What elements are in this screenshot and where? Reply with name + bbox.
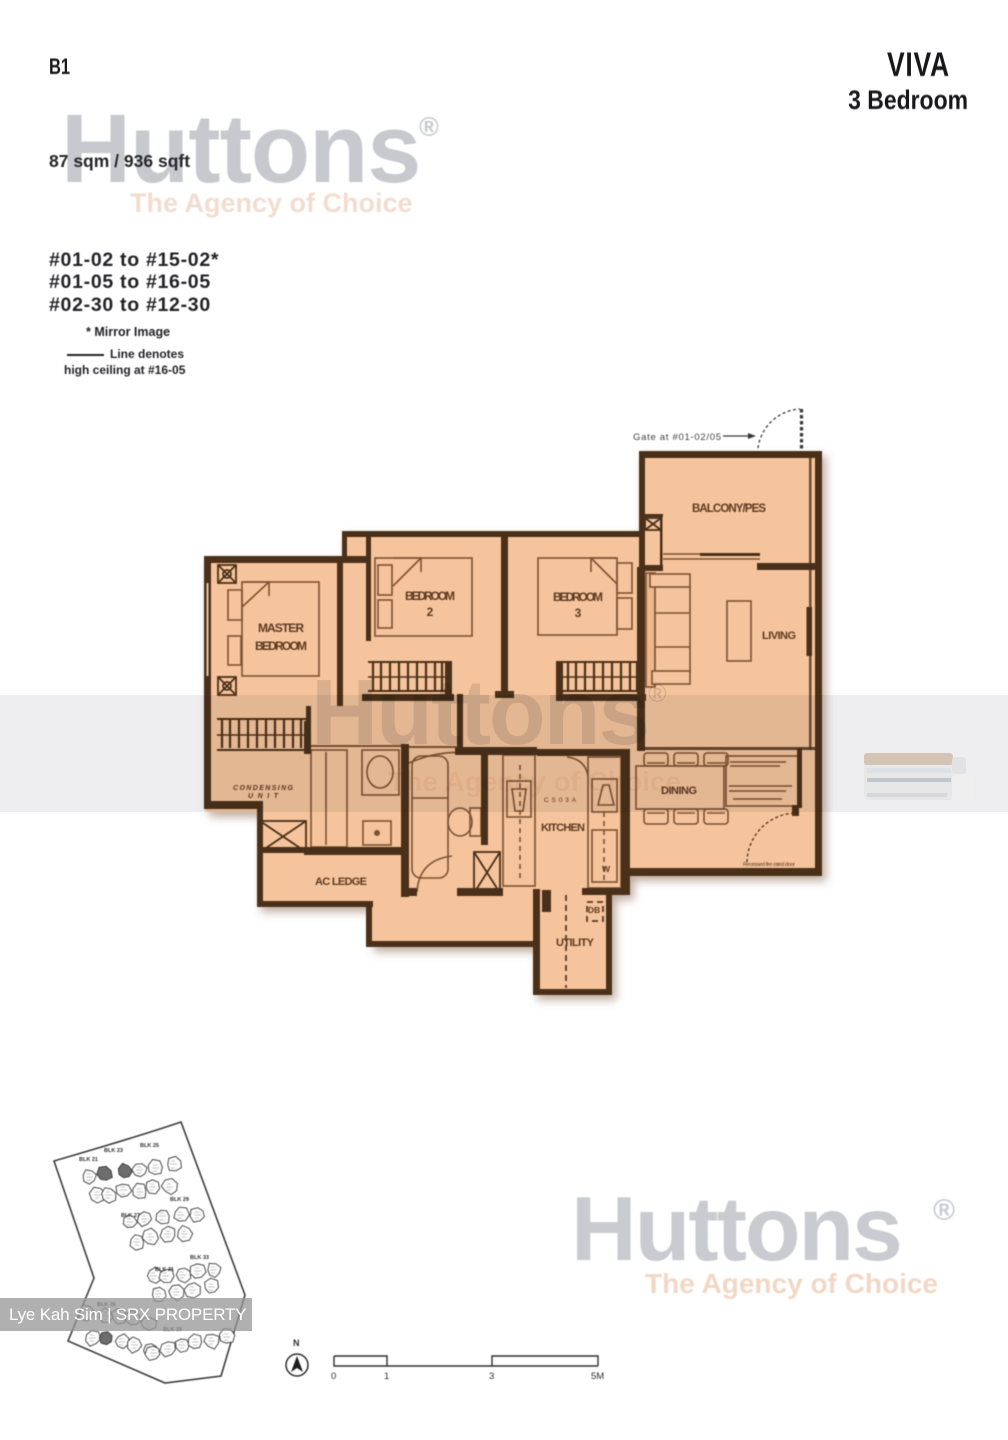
svg-text:BLK 23: BLK 23 [104,1148,123,1154]
svg-text:BALCONY/PES: BALCONY/PES [692,503,766,515]
svg-text:BEDROOM: BEDROOM [405,589,455,603]
svg-text:BLK 33: BLK 33 [190,1255,209,1261]
svg-text:N: N [293,1338,300,1348]
svg-text:5M: 5M [591,1371,604,1382]
svg-text:AC LEDGE: AC LEDGE [315,876,367,888]
svg-text:BLK 29: BLK 29 [170,1197,189,1203]
svg-text:BLK 21: BLK 21 [79,1157,98,1163]
svg-text:BLK 31: BLK 31 [155,1267,174,1273]
svg-text:W: W [602,864,611,874]
svg-text:BEDROOM: BEDROOM [255,639,307,653]
svg-text:BEDROOM: BEDROOM [553,590,603,604]
svg-text:3: 3 [489,1371,494,1382]
svg-text:Gate at #01-02/05: Gate at #01-02/05 [633,432,721,443]
svg-text:2: 2 [427,605,434,619]
svg-text:MASTER: MASTER [258,621,304,635]
svg-text:KITCHEN: KITCHEN [541,822,585,834]
svg-text:LIVING: LIVING [762,630,796,642]
svg-text:UTILITY: UTILITY [556,937,595,949]
svg-text:1: 1 [384,1371,389,1382]
svg-text:BLK 25: BLK 25 [140,1143,159,1149]
svg-text:Recessed fire rated door: Recessed fire rated door [743,862,795,868]
svg-text:0: 0 [331,1371,336,1382]
svg-text:DB: DB [588,905,600,915]
svg-text:BLK 27: BLK 27 [121,1213,140,1219]
svg-text:3: 3 [575,606,582,620]
